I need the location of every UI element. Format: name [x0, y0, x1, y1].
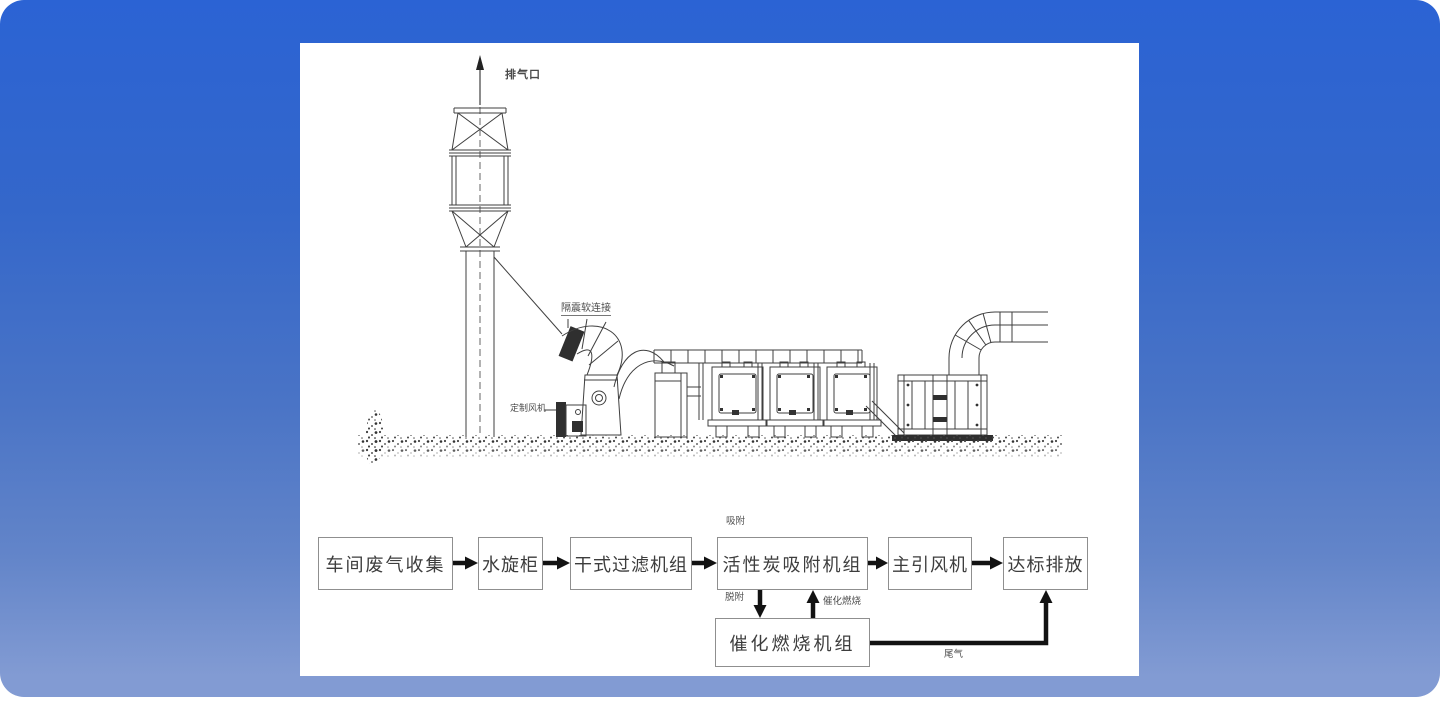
annotation-adsorption: 吸附 [726, 518, 745, 528]
flow-box-water-spray-cabinet: 水旋柜 [478, 537, 543, 590]
annotation-catalytic-combustion: 催化燃烧 [823, 598, 861, 608]
flow-box-compliant-discharge: 达标排放 [1003, 537, 1088, 590]
custom-fan-unit [544, 402, 586, 437]
flow-box-workshop-gas-collection: 车间废气收集 [318, 537, 453, 590]
adsorption-cabinets [708, 362, 904, 438]
main-fan-unit-and-outlet-duct [892, 312, 1048, 441]
annotation-tail-gas: 尾气 [944, 651, 963, 661]
flow-box-activated-carbon-adsorption-unit: 活性炭吸附机组 [717, 537, 868, 590]
custom-fan-label: 定制风机 [510, 404, 546, 413]
flow-box-main-induced-draft-fan: 主引风机 [888, 537, 972, 590]
flow-box-catalytic-combustion-unit: 催化燃烧机组 [715, 618, 870, 667]
exhaust-outlet-label: 排气口 [505, 70, 541, 81]
annotation-desorption: 脱附 [725, 594, 744, 604]
diagram-panel: 排气口 隔震软连接 定制风机 车间废气收集 水旋柜 干式过滤机组 活性炭吸附机组… [300, 43, 1139, 676]
chimney-stack [449, 55, 562, 437]
slide-background: 排气口 隔震软连接 定制风机 车间废气收集 水旋柜 干式过滤机组 活性炭吸附机组… [0, 0, 1440, 697]
flex-joint-and-elbow-duct [559, 319, 623, 435]
flex-joint-label: 隔震软连接 [561, 304, 611, 316]
flow-box-dry-filter-unit: 干式过滤机组 [570, 537, 692, 590]
ground-stipple [358, 410, 1062, 465]
